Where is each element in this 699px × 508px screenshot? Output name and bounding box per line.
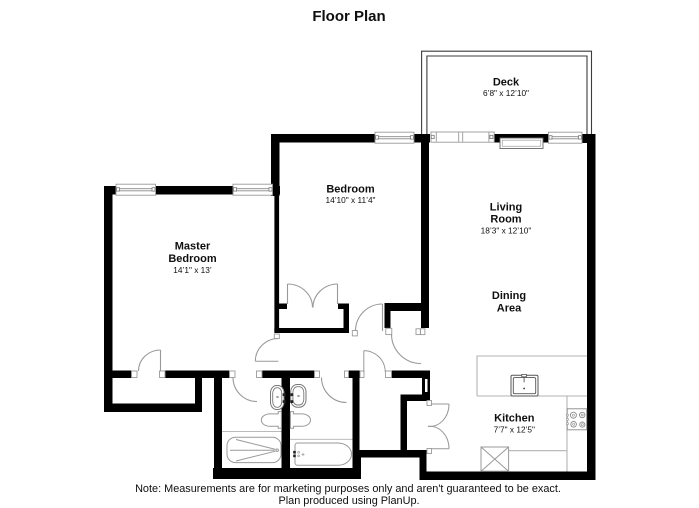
svg-text:Bedroom: Bedroom [168,253,217,265]
svg-text:Deck: Deck [493,77,520,89]
svg-text:Dining: Dining [492,290,526,302]
svg-text:6’8" x 12’10": 6’8" x 12’10" [483,88,529,98]
svg-text:Bedroom: Bedroom [326,184,375,196]
svg-text:14’10" x 11’4": 14’10" x 11’4" [325,195,375,205]
svg-text:Room: Room [490,214,521,226]
svg-text:Area: Area [497,303,522,315]
svg-text:Kitchen: Kitchen [494,413,535,425]
svg-text:Living: Living [490,202,522,214]
svg-text:7’7" x 12’5": 7’7" x 12’5" [494,425,535,435]
svg-text:Plan produced using PlanUp.: Plan produced using PlanUp. [278,495,419,507]
svg-text:Note: Measurements are for mar: Note: Measurements are for marketing pur… [135,483,561,495]
svg-text:Master: Master [175,241,211,253]
svg-text:18’3" x 12’10": 18’3" x 12’10" [481,226,532,236]
svg-text:Floor Plan: Floor Plan [312,8,385,25]
svg-text:14’1" x 13’: 14’1" x 13’ [173,265,212,275]
